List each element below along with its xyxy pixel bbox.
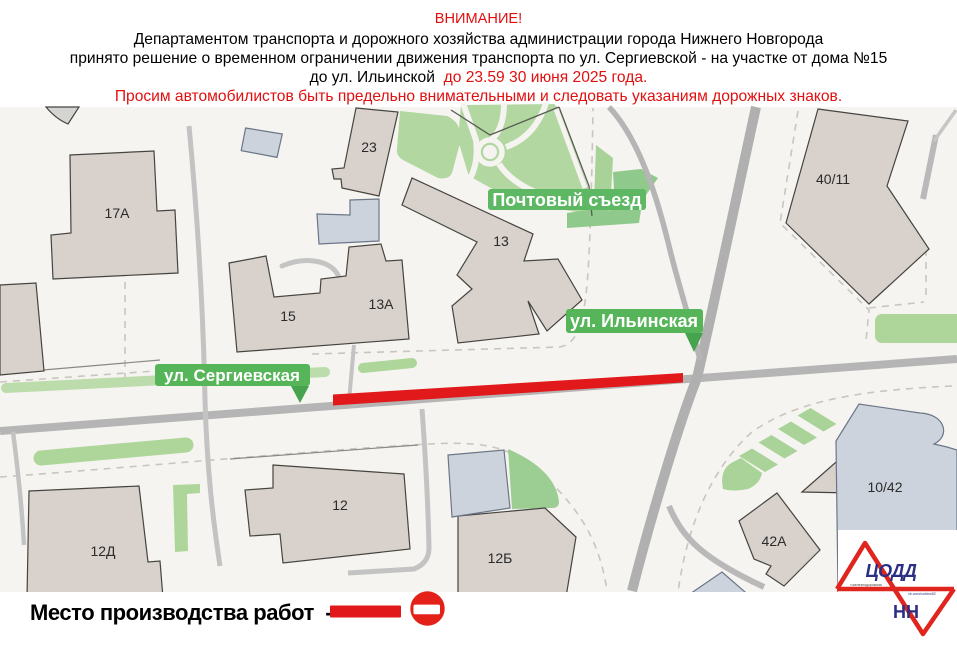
svg-text:Место производства работ -: Место производства работ - [30,600,332,625]
svg-text:12: 12 [332,497,348,513]
svg-text:12Д: 12Д [90,543,116,559]
svg-text:13А: 13А [369,296,395,312]
svg-text:17А: 17А [105,205,131,221]
svg-text:42А: 42А [762,533,788,549]
svg-text:10/42: 10/42 [867,479,902,495]
svg-text:40/11: 40/11 [816,171,850,187]
svg-text:т.железнодорожная: т.железнодорожная [850,583,882,587]
svg-text:НН: НН [893,602,919,622]
svg-text:ул. Сергиевская: ул. Сергиевская [164,366,300,385]
svg-text:23: 23 [361,139,377,155]
svg-text:ЦОДД: ЦОДД [866,561,917,581]
svg-text:ул. Ильинская: ул. Ильинская [570,311,698,331]
svg-text:13: 13 [493,233,509,249]
svg-text:vk.com/coddnn52: vk.com/coddnn52 [908,592,935,596]
svg-text:12Б: 12Б [488,550,513,566]
svg-text:Почтовый съезд: Почтовый съезд [492,190,642,210]
svg-text:15: 15 [280,308,296,324]
